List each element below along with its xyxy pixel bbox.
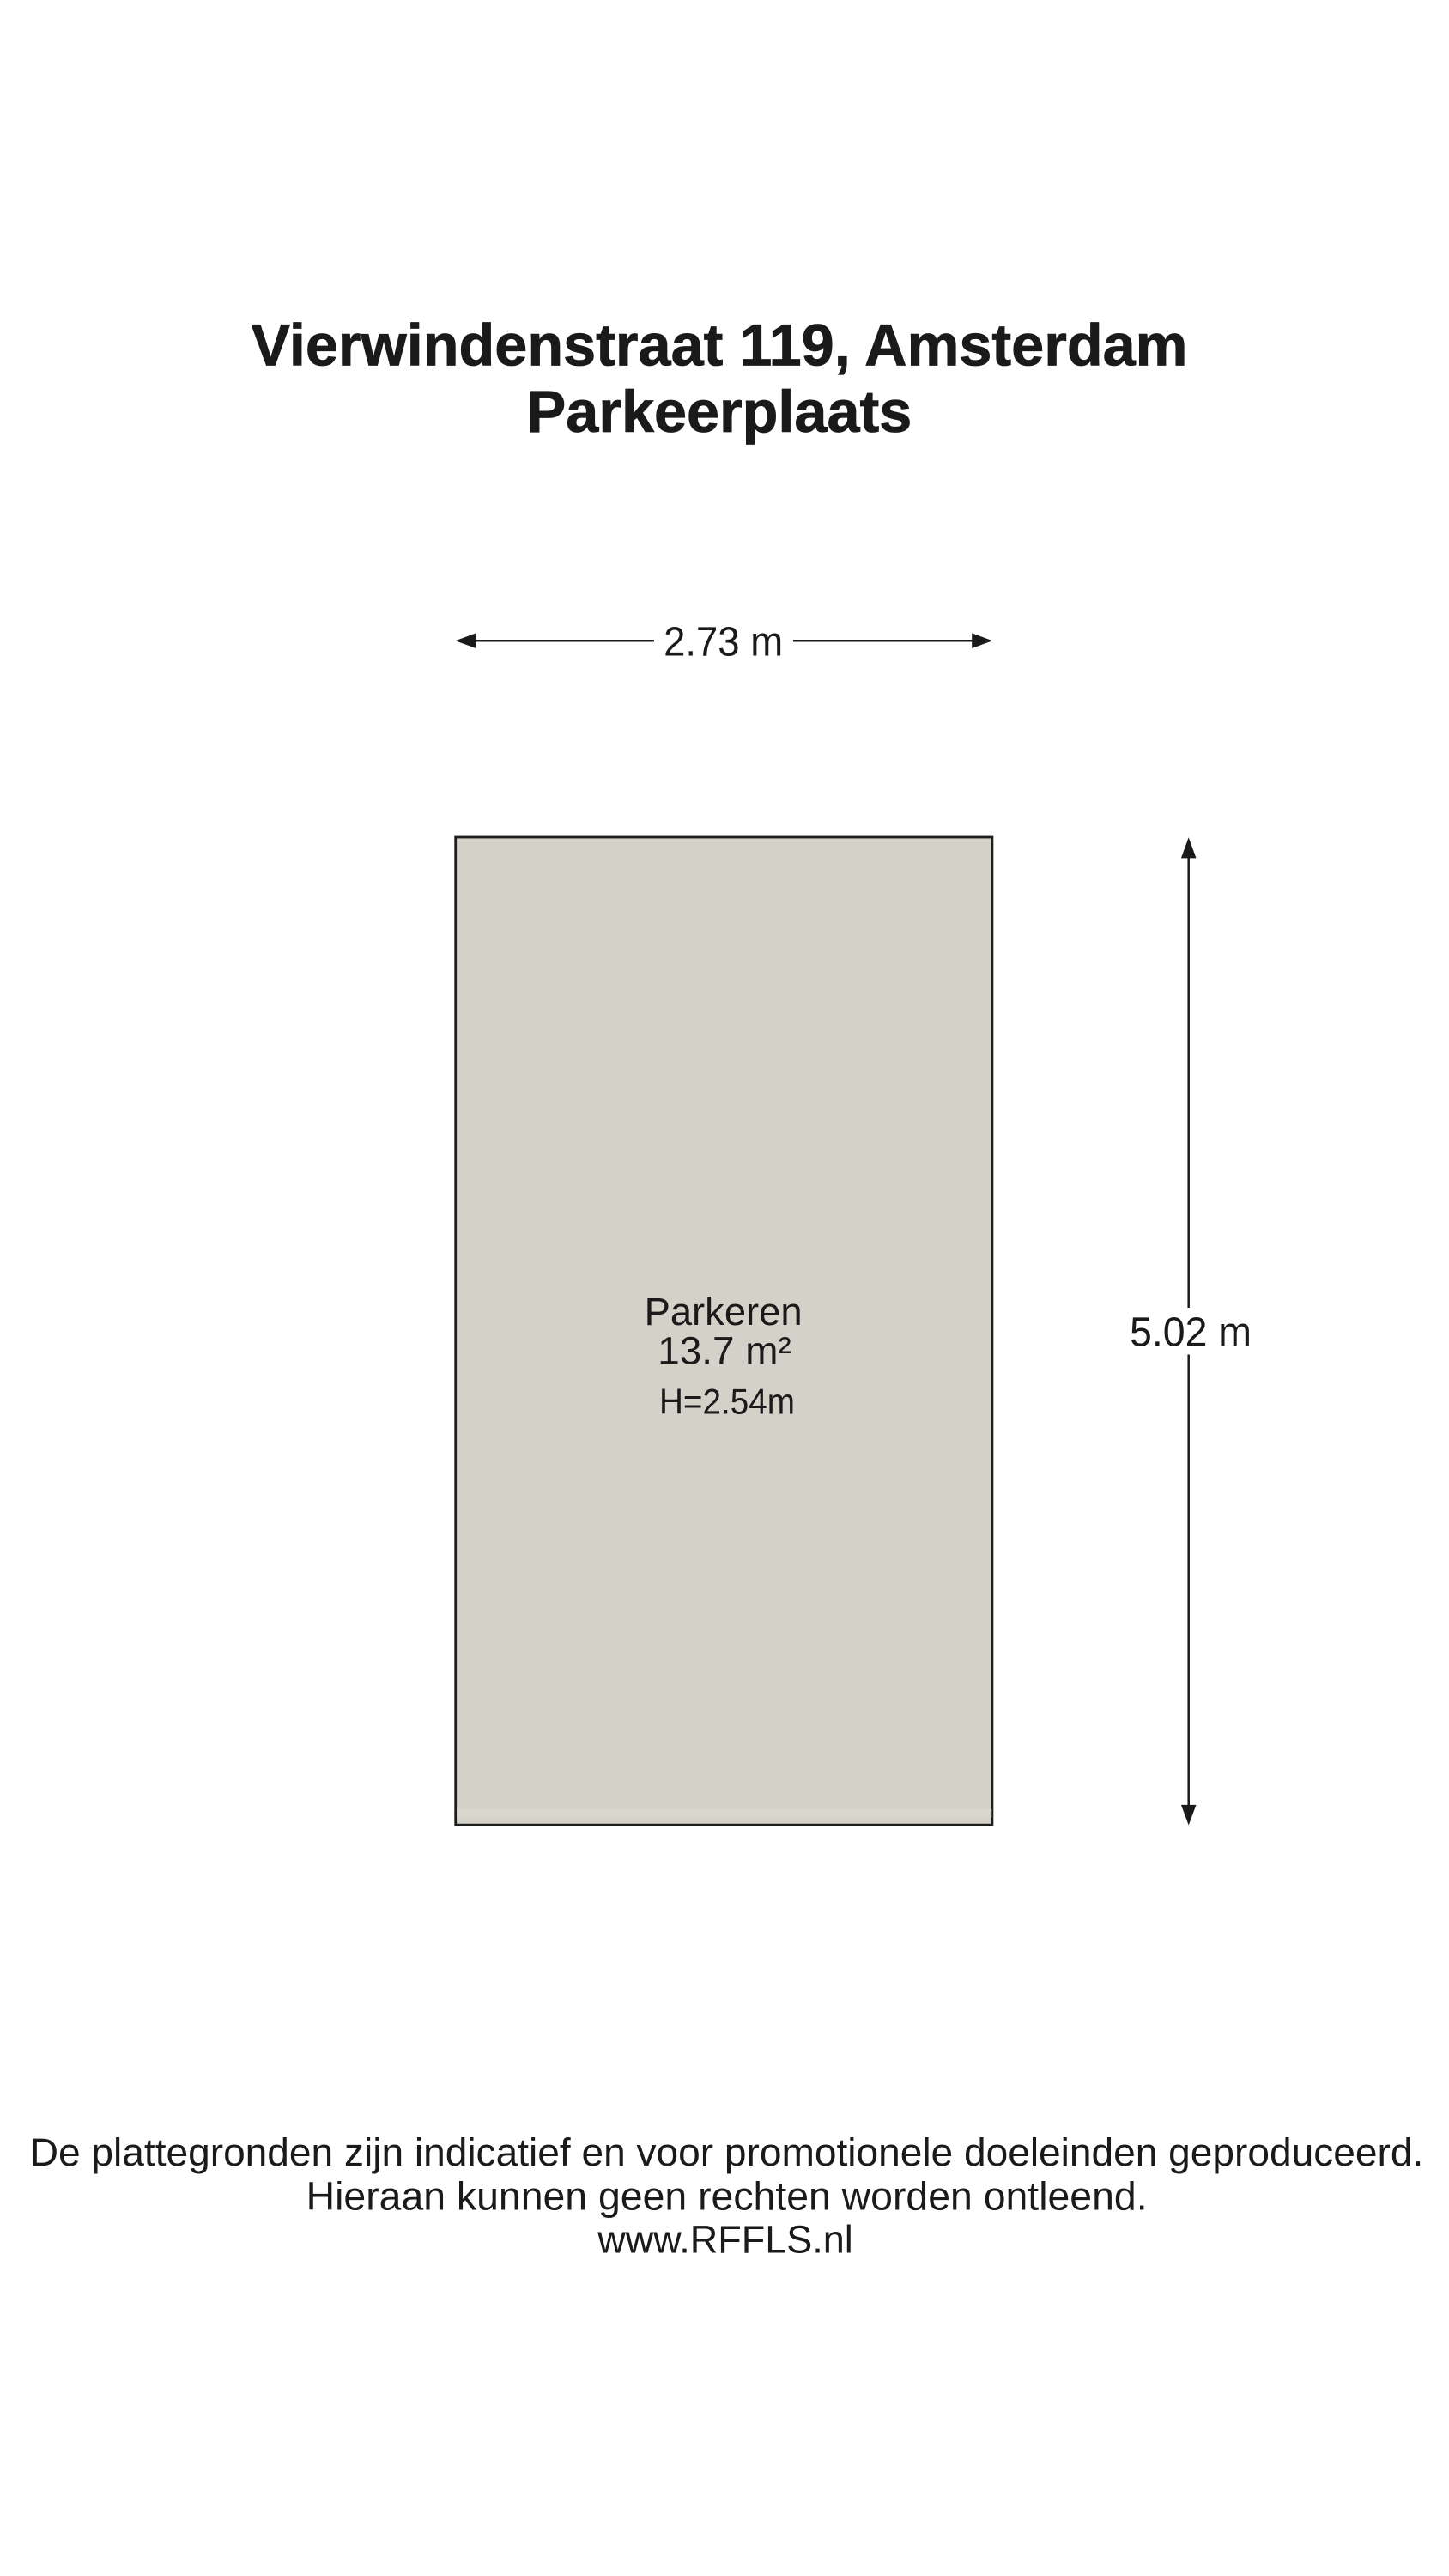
svg-text:Parkeren: Parkeren	[645, 1290, 803, 1334]
svg-text:H=2.54m: H=2.54m	[659, 1382, 795, 1422]
svg-text:Hieraan kunnen geen rechten wo: Hieraan kunnen geen rechten worden ontle…	[306, 2173, 1148, 2218]
svg-text:5.02 m: 5.02 m	[1130, 1310, 1252, 1356]
svg-text:www.RFFLS.nl: www.RFFLS.nl	[597, 2217, 853, 2261]
svg-text:De plattegronden zijn indicati: De plattegronden zijn indicatief en voor…	[30, 2130, 1424, 2174]
svg-text:Vierwindenstraat 119, Amsterda: Vierwindenstraat 119, Amsterdam	[252, 313, 1188, 379]
svg-text:Parkeerplaats: Parkeerplaats	[527, 380, 912, 445]
svg-text:2.73 m: 2.73 m	[664, 619, 783, 665]
svg-text:13.7 m²: 13.7 m²	[658, 1328, 791, 1372]
